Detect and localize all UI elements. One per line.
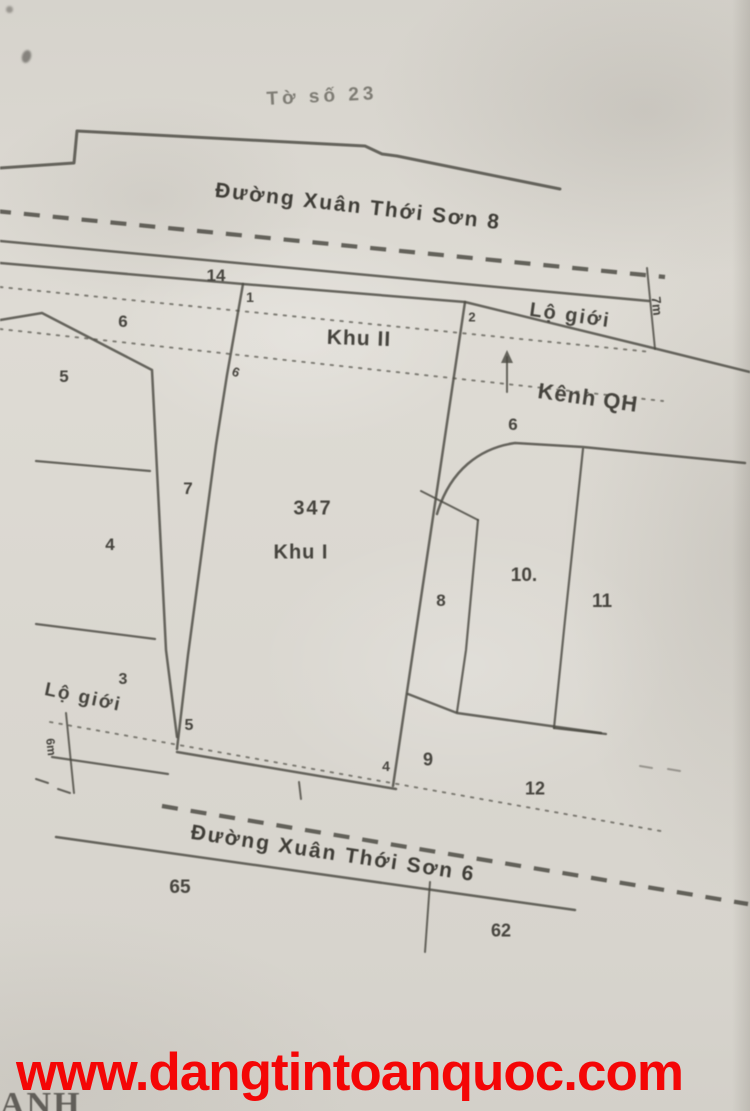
plot-number-label: 62	[491, 921, 511, 942]
stray-dash-1	[640, 766, 652, 768]
plot-number-label: 2	[468, 310, 475, 325]
plot-number-label: 6	[118, 312, 127, 332]
plot-divider-left-2	[36, 624, 155, 639]
north-boundary-line	[0, 131, 560, 189]
plot-divider-left-1	[36, 461, 150, 471]
bottom-left-edge-line	[52, 757, 168, 774]
plot9-north-line	[408, 694, 601, 733]
plot-number-label: 10.	[511, 565, 537, 587]
south-edge-tick	[299, 782, 301, 799]
plot-number-label: 11	[592, 591, 612, 613]
road-width-6m: 6m	[43, 738, 59, 757]
map-drawing: Tờ số 23 Đường Xuân Thới Sơn 8 Lộ giới 7…	[0, 0, 750, 1111]
top-road-dashed-line	[0, 211, 665, 277]
setback-line	[0, 263, 750, 372]
plot62-tick	[425, 882, 430, 952]
plot-number-label: 9	[423, 750, 433, 771]
plot-number-label: 14	[207, 266, 226, 286]
bottom-road-dashed-line	[162, 806, 748, 904]
parcel-number: 347	[293, 498, 332, 521]
bottom-left-dash-2	[58, 789, 70, 793]
plot-number-label: 4	[382, 758, 390, 774]
bottom-left-dash-1	[36, 779, 48, 783]
plot-number-label: 1	[246, 289, 254, 305]
plot-number-label: 12	[525, 779, 545, 800]
plot-number-label: 5	[185, 717, 194, 735]
plot-number-label: 7	[183, 479, 192, 499]
road-width-7m: 7m	[649, 296, 666, 316]
plot-number-label: 3	[119, 671, 128, 689]
watermark-url: www.dangtintoanquoc.com	[16, 1042, 736, 1103]
plot-number-label: 4	[105, 535, 114, 555]
west-outer-boundary	[0, 313, 177, 737]
plot10-north-curve	[437, 443, 745, 514]
plot10-11-divider	[554, 449, 583, 728]
canal-arrow-head	[501, 350, 513, 363]
bottom-setback-dotted-line	[50, 722, 666, 832]
plot-number-label: 8	[436, 591, 445, 611]
parcel-south-edge	[177, 752, 396, 789]
plot-number-label: 65	[169, 877, 190, 899]
plot8-east-edge	[457, 520, 478, 712]
stray-dash-2	[668, 769, 680, 771]
parcel-boundary-lines	[0, 0, 750, 1111]
plot-number-label: 6	[508, 415, 517, 435]
plot8-connector	[421, 491, 478, 520]
parcel-west-edge	[177, 284, 243, 749]
zone2-label: Khu II	[326, 326, 391, 352]
parcel-east-edge	[393, 302, 465, 786]
zone1-label: Khu I	[274, 542, 329, 565]
cut-off-corner-text: ANH	[0, 1086, 82, 1111]
plot-number-label: 5	[59, 367, 68, 387]
cadastral-map-scan: Tờ số 23 Đường Xuân Thới Sơn 8 Lộ giới 7…	[0, 0, 750, 1111]
